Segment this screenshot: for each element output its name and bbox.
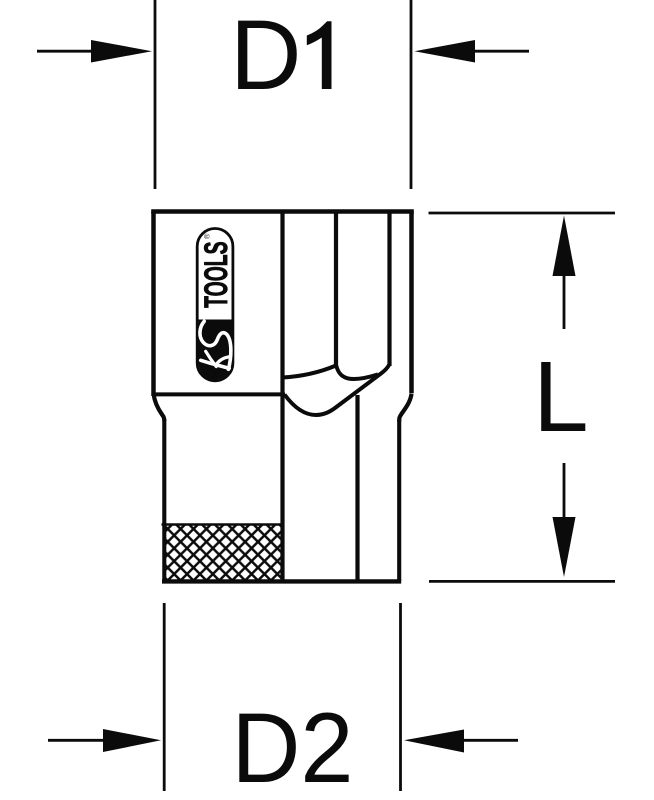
svg-text:®: ® — [203, 233, 212, 239]
svg-text:D2: D2 — [232, 693, 354, 800]
svg-text:L: L — [533, 341, 589, 453]
svg-text:D: D — [230, 0, 302, 110]
svg-text:TOOLS: TOOLS — [198, 241, 234, 308]
